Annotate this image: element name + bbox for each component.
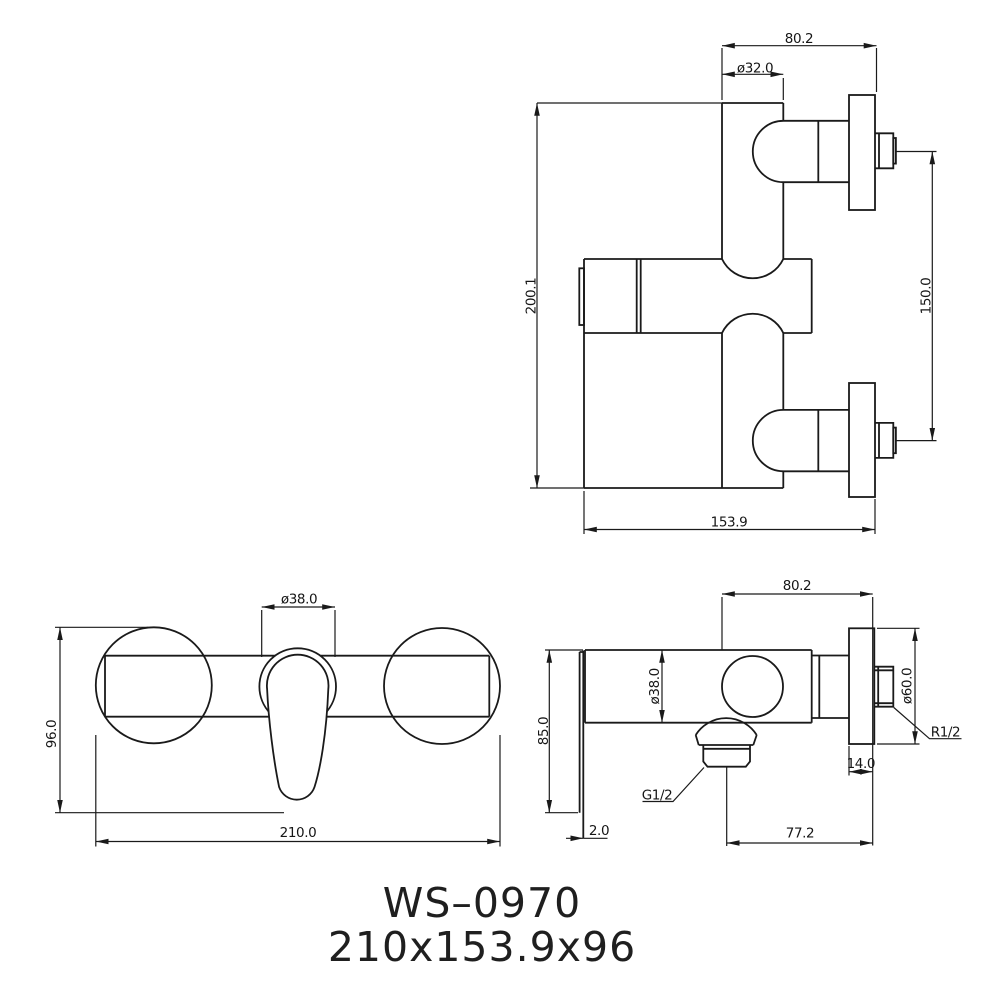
overall-size: 210x153.9x96 (328, 923, 636, 971)
dim-front-handle-diameter: ø38.0 (281, 592, 317, 608)
model-number: WS–0970 (383, 879, 581, 927)
dim-side-plate-height: 85.0 (536, 717, 552, 745)
dim-side-flange-thickness: 14.0 (847, 756, 875, 772)
top-flange-upper (849, 95, 875, 210)
dim-front-height: 96.0 (44, 720, 60, 748)
dim-side-depth: 80.2 (783, 578, 811, 594)
front-left-flange (96, 627, 212, 743)
faucet-technical-drawing: 80.2 ø32.0 200.1 150.0 153.9 (0, 0, 1000, 1000)
front-view: ø38.0 96.0 210.0 (44, 592, 500, 847)
side-outlet-thread (703, 745, 750, 767)
dim-side-plate-thickness: 2.0 (589, 823, 609, 839)
label-inlet-thread: R1/2 (931, 725, 961, 741)
dim-front-width: 210.0 (280, 825, 317, 841)
dim-side-outlet-offset: 77.2 (786, 826, 814, 842)
dim-top-depth: 80.2 (785, 31, 813, 47)
side-view: 80.2 ø38.0 85.0 ø60.0 14.0 77.2 2.0 G1/2… (536, 578, 962, 846)
top-view-labels: 80.2 ø32.0 200.1 150.0 153.9 (524, 31, 935, 531)
front-handle-lever (267, 655, 329, 800)
dim-top-body-diameter: ø32.0 (737, 61, 773, 77)
title-block: WS–0970 210x153.9x96 (328, 879, 636, 971)
front-view-geometry (96, 627, 500, 799)
label-outlet-thread: G1/2 (642, 788, 673, 804)
dim-side-flange-diameter: ø60.0 (900, 668, 916, 704)
front-right-flange (384, 628, 500, 744)
side-view-dimensions (545, 594, 962, 846)
top-flange-lower (849, 383, 875, 497)
dim-top-overall-depth: 153.9 (711, 515, 748, 531)
side-cartridge-housing (722, 656, 783, 717)
side-view-geometry (580, 628, 894, 838)
top-wall-plate-edge (579, 268, 584, 325)
side-inlet-nipple (874, 667, 893, 707)
top-view: 80.2 ø32.0 200.1 150.0 153.9 (524, 31, 937, 534)
top-view-geometry (579, 95, 896, 497)
technical-drawing-sheet: 80.2 ø32.0 200.1 150.0 153.9 (0, 0, 1000, 1000)
dim-top-connection-spacing: 150.0 (919, 278, 935, 315)
dim-top-overall-height: 200.1 (524, 278, 540, 315)
side-wall-plate (580, 651, 584, 839)
dim-side-body-diameter: ø38.0 (647, 668, 663, 704)
side-wall-flange (849, 628, 874, 744)
side-outlet-dome (696, 718, 757, 735)
